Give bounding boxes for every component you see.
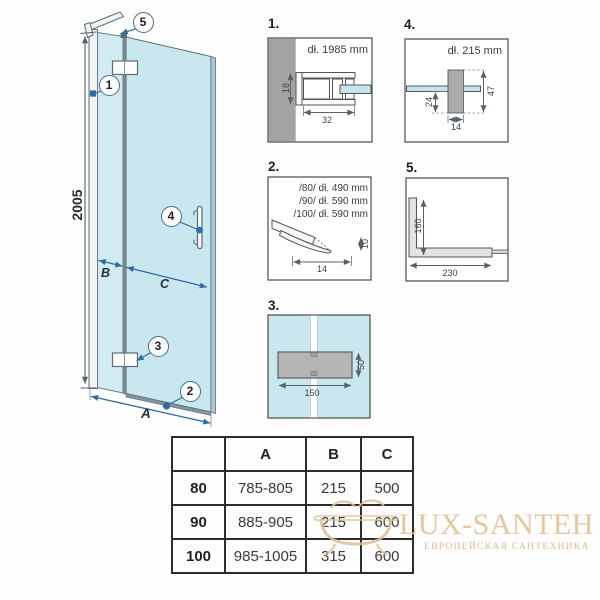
cell-b: 315 xyxy=(306,539,361,573)
panel-3-dim-150: 150 xyxy=(300,388,324,398)
leader-1-marker xyxy=(91,91,96,96)
panel-4-length-note: dł. 215 mm xyxy=(428,45,502,57)
cell-c: 600 xyxy=(361,539,413,573)
technical-drawing-page: 2005 B C A 5 1 4 3 2 1. 4. 2. 5. 3. dł. … xyxy=(0,0,600,600)
panel-2-label: 2. xyxy=(268,159,279,174)
callout-3-hinge: 3 xyxy=(148,336,169,357)
table-header-A: A xyxy=(225,437,306,471)
cell-b: 215 xyxy=(306,471,361,505)
panel-5-dim-230: 230 xyxy=(438,268,462,278)
callout-4-handle: 4 xyxy=(161,206,182,227)
panel-5-label: 5. xyxy=(406,160,417,175)
callout-2-bottom-seal: 2 xyxy=(180,381,201,402)
cell-b: 215 xyxy=(306,505,361,539)
panel-1-length-note: dł. 1985 mm xyxy=(294,44,368,56)
hinge-plate-top xyxy=(113,61,138,75)
cell-c: 600 xyxy=(361,505,413,539)
panel-4-label: 4. xyxy=(404,17,415,32)
door-glass-edge xyxy=(211,57,216,414)
table-header-row: A B C xyxy=(172,437,413,471)
panel-2-dim-14: 14 xyxy=(314,264,330,274)
dim-label-C: C xyxy=(160,277,169,291)
panel-2-length-note-100: /100/ dł. 590 mm xyxy=(270,208,368,221)
panel-2-dim-10: 10 xyxy=(360,236,370,252)
cell-a: 885-905 xyxy=(225,505,306,539)
cell-a: 985-1005 xyxy=(225,539,306,573)
wall-profile xyxy=(89,30,98,389)
panel-3-dim-50: 50 xyxy=(356,357,366,373)
panel-1-dim-32: 32 xyxy=(317,115,337,125)
row-size: 80 xyxy=(172,471,225,505)
leader-5 xyxy=(121,29,135,34)
callout-5-support-bar: 5 xyxy=(133,12,154,33)
height-dim-label: 2005 xyxy=(69,183,85,227)
dim-label-A: A xyxy=(141,406,151,421)
size-table: A B C 80 785-805 215 500 90 885-905 215 … xyxy=(171,436,414,574)
detail-panel-3 xyxy=(268,315,370,418)
cell-a: 785-805 xyxy=(225,471,306,505)
panel-5-dim-160: 160 xyxy=(413,215,423,237)
callout-1-wall-profile: 1 xyxy=(99,75,120,96)
panel-2-length-note-80: /80/ dł. 490 mm xyxy=(270,182,368,195)
panel-2-length-note-90: /90/ dł. 590 mm xyxy=(270,195,368,208)
panel-1-dim-18: 18 xyxy=(281,78,291,98)
panel-1-label: 1. xyxy=(268,16,279,31)
table-row: 90 885-905 215 600 xyxy=(172,505,413,539)
rod-section xyxy=(492,250,508,254)
handle-section xyxy=(448,70,464,113)
leader-4-marker xyxy=(197,227,203,233)
panel-4-dim-24: 24 xyxy=(424,93,434,111)
shower-door-drawing xyxy=(81,12,216,427)
glass-section xyxy=(340,85,371,94)
panel-4-dim-47: 47 xyxy=(486,82,496,100)
table-header-C: C xyxy=(361,437,413,471)
cell-c: 500 xyxy=(361,471,413,505)
glass-section xyxy=(407,86,481,92)
table-row: 80 785-805 215 500 xyxy=(172,471,413,505)
table-row: 100 985-1005 315 600 xyxy=(172,539,413,573)
hinge-plate-bottom xyxy=(113,353,138,367)
row-size: 90 xyxy=(172,505,225,539)
table-header-empty xyxy=(172,437,225,471)
panel-4-dim-14: 14 xyxy=(448,122,464,132)
row-size: 100 xyxy=(172,539,225,573)
table-header-B: B xyxy=(306,437,361,471)
panel-3-label: 3. xyxy=(268,298,279,313)
leader-2-marker xyxy=(164,403,170,409)
dim-label-B: B xyxy=(101,266,110,280)
